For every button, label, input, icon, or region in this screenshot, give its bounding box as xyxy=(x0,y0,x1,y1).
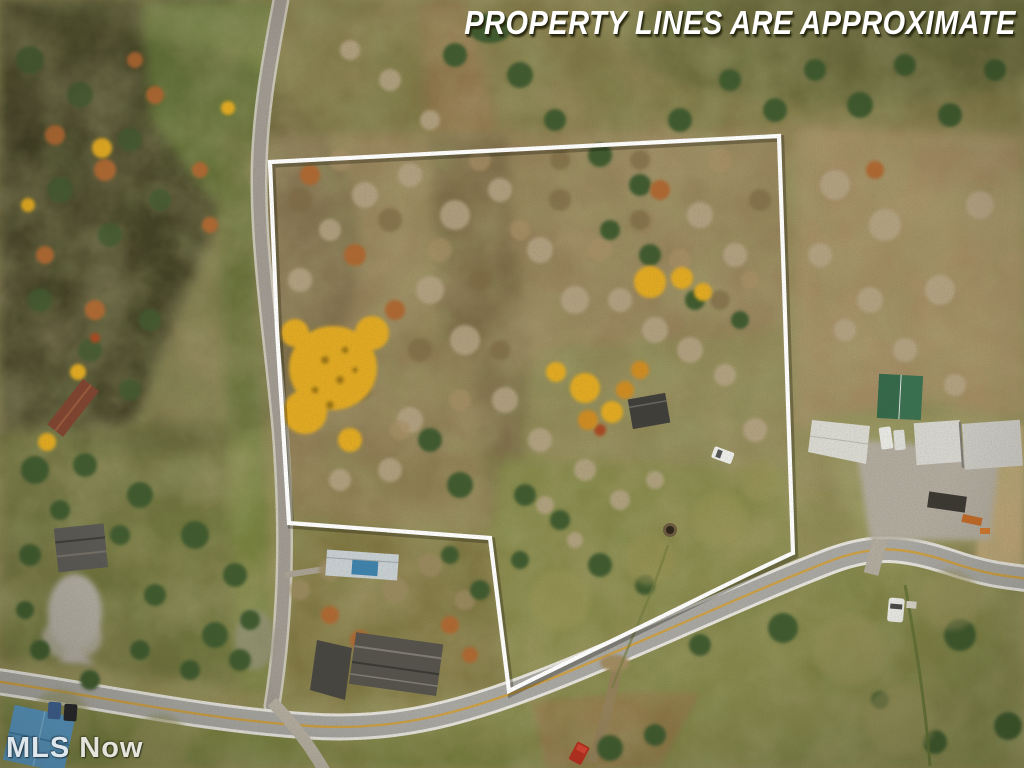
mls-watermark: MLS Now xyxy=(6,732,144,765)
aerial-photo-scene xyxy=(0,0,1024,768)
vignette xyxy=(0,0,1024,768)
aerial-photo: PROPERTY LINES ARE APPROXIMATE MLS Now xyxy=(0,0,1024,768)
disclaimer-text: PROPERTY LINES ARE APPROXIMATE xyxy=(464,4,1016,42)
